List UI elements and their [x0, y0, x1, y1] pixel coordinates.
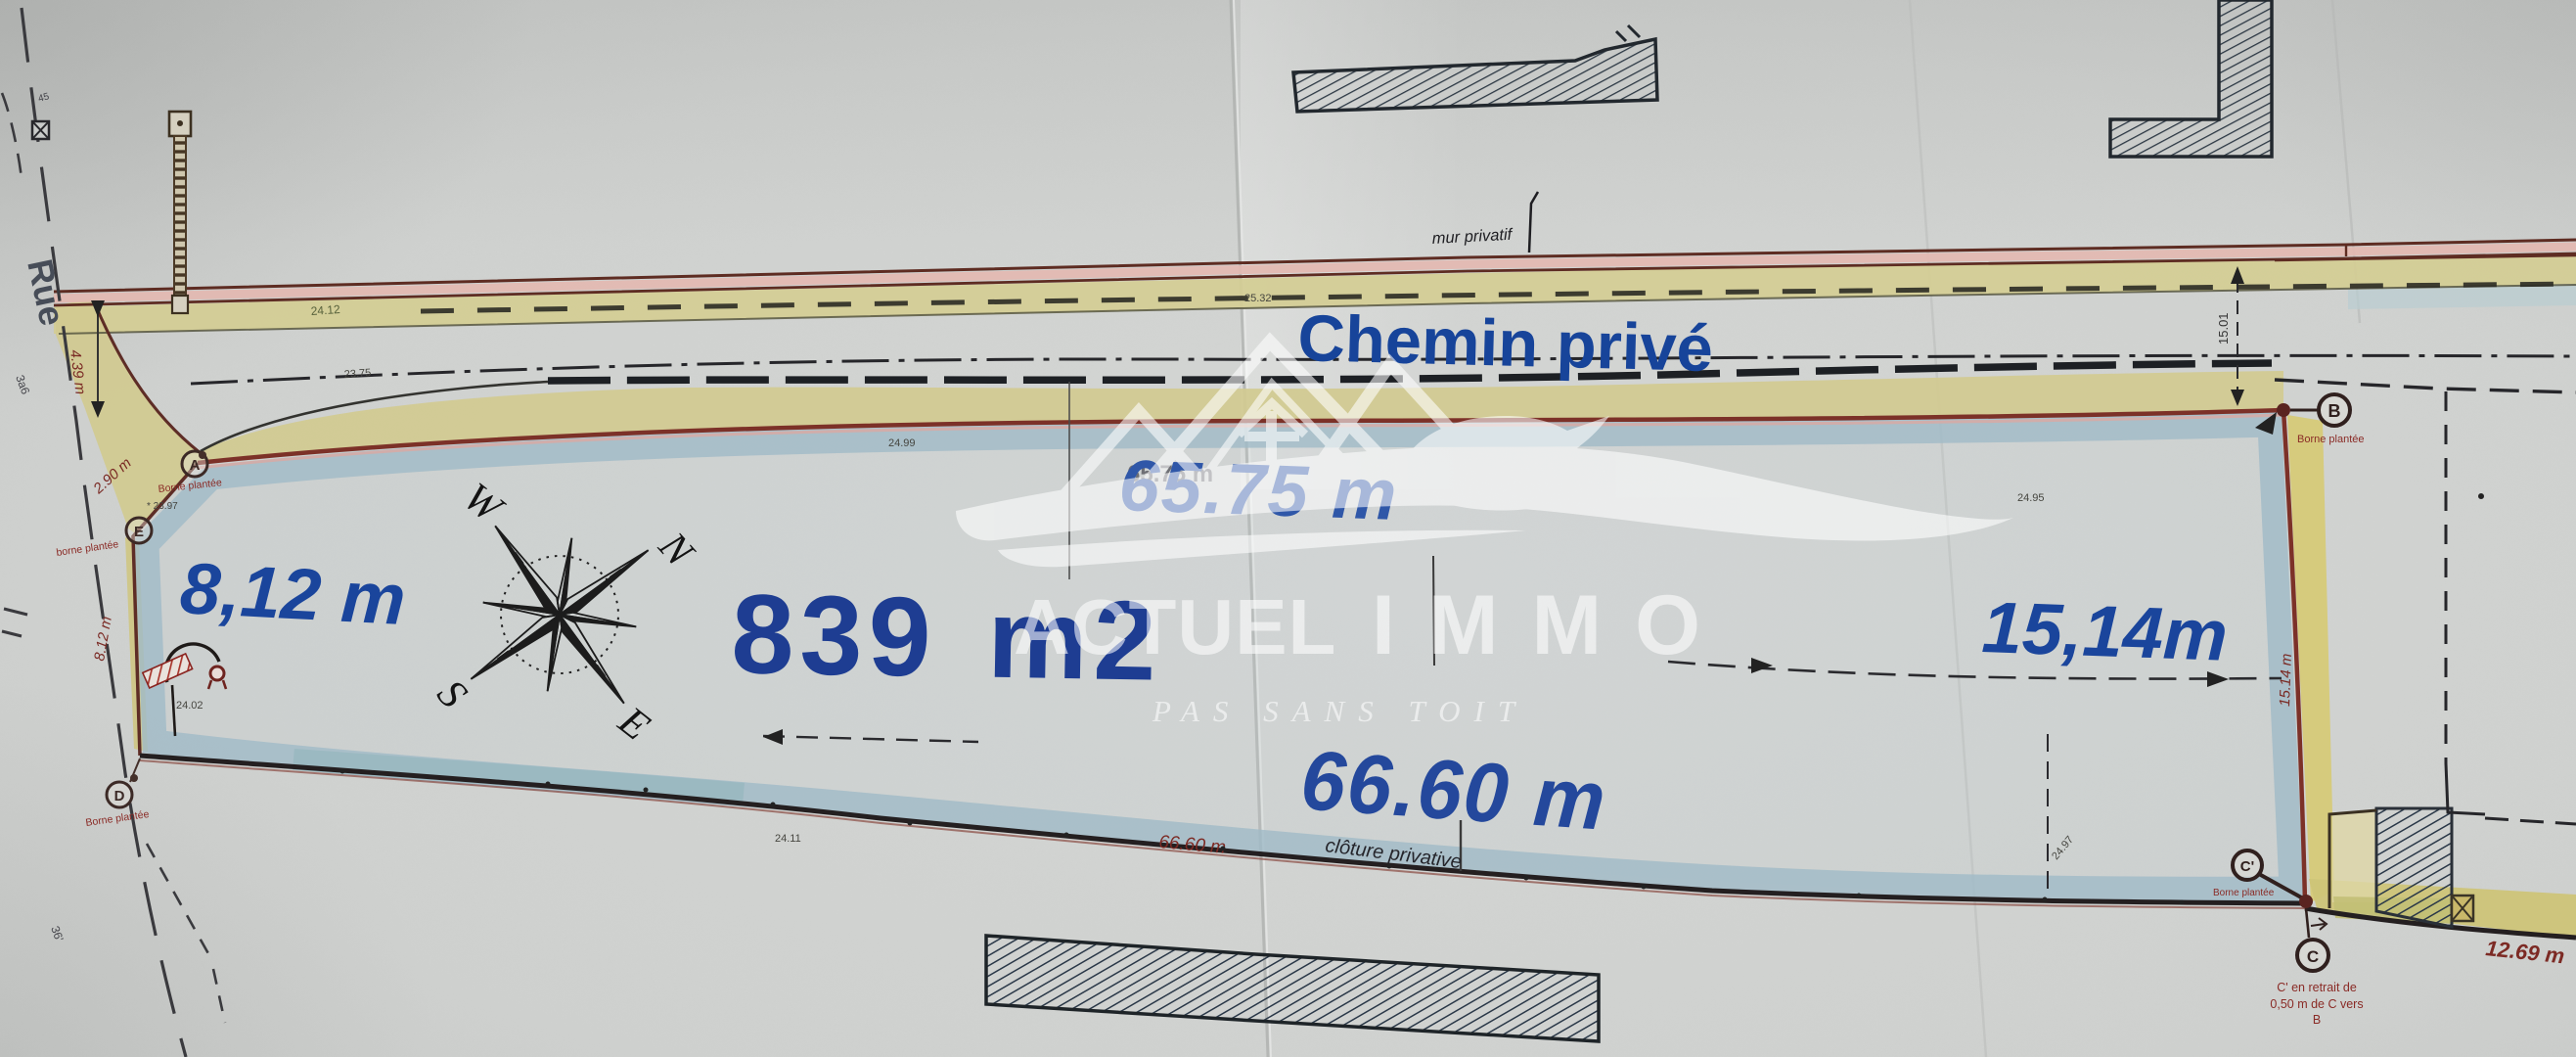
svg-text:A: A [190, 457, 201, 474]
svg-text:25.32: 25.32 [1244, 293, 1272, 304]
svg-text:Borne plantée: Borne plantée [2297, 434, 2365, 445]
svg-text:15.14 m: 15.14 m [2277, 653, 2295, 707]
svg-text:ACTUEL: ACTUEL [1014, 583, 1336, 670]
svg-text:* 23.97: * 23.97 [147, 501, 178, 512]
svg-text:0,50 m de C vers: 0,50 m de C vers [2270, 997, 2363, 1011]
svg-text:B: B [2313, 1013, 2321, 1027]
svg-text:PAS SANS TOIT: PAS SANS TOIT [1152, 694, 1528, 728]
svg-text:23.75: 23.75 [343, 367, 371, 381]
svg-text:8,12 m: 8,12 m [178, 547, 407, 640]
svg-text:C: C [2307, 947, 2319, 966]
svg-text:24.02: 24.02 [176, 700, 203, 712]
svg-text:Chemin privé: Chemin privé [1297, 301, 1714, 386]
svg-text:IMMO: IMMO [1372, 578, 1734, 672]
svg-text:24.99: 24.99 [888, 437, 916, 449]
svg-text:D: D [114, 788, 125, 804]
svg-text:Borne plantée: Borne plantée [2213, 888, 2275, 898]
svg-text:C' en retrait de: C' en retrait de [2277, 981, 2357, 994]
svg-text:B: B [2328, 401, 2341, 421]
svg-text:15.01: 15.01 [2216, 312, 2231, 345]
svg-text:15,14m: 15,14m [1980, 586, 2229, 676]
svg-text:24.11: 24.11 [775, 833, 801, 845]
svg-text:E: E [134, 524, 144, 540]
svg-text:24.12: 24.12 [310, 302, 340, 318]
svg-text:24.95: 24.95 [2017, 492, 2045, 504]
svg-text:C': C' [2240, 858, 2254, 875]
